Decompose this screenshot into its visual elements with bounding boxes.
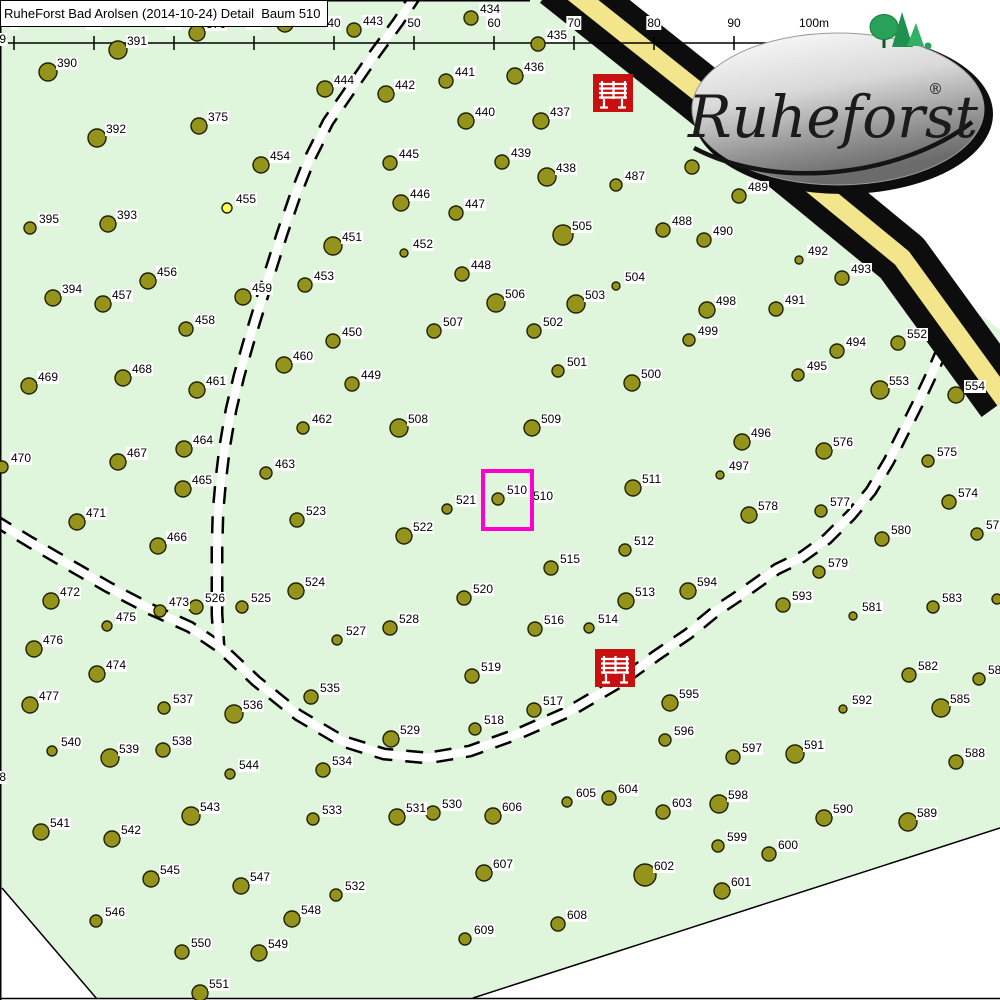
- tree-dot[interactable]: [948, 387, 964, 403]
- tree-dot[interactable]: [507, 68, 523, 84]
- tree-dot[interactable]: [179, 322, 193, 336]
- tree-dot[interactable]: [251, 945, 267, 961]
- tree-dot[interactable]: [839, 705, 847, 713]
- tree-dot[interactable]: [871, 381, 889, 399]
- tree-dot[interactable]: [567, 295, 585, 313]
- tree-dot[interactable]: [685, 160, 699, 174]
- tree-dot[interactable]: [297, 422, 309, 434]
- logo-registered-mark: ®: [928, 80, 943, 98]
- tree-dot[interactable]: [396, 528, 412, 544]
- tree-dot[interactable]: [712, 840, 724, 852]
- tree-dot[interactable]: [899, 813, 917, 831]
- tree-dot[interactable]: [683, 334, 695, 346]
- tree-dot[interactable]: [659, 734, 671, 746]
- tree-dot[interactable]: [383, 156, 397, 170]
- tree-dot[interactable]: [400, 249, 408, 257]
- tree-dot[interactable]: [69, 514, 85, 530]
- tree-dot[interactable]: [260, 467, 272, 479]
- tree-dot[interactable]: [551, 917, 565, 931]
- tree-dot[interactable]: [21, 378, 37, 394]
- tree-dot[interactable]: [714, 883, 730, 899]
- tree-dot[interactable]: [469, 723, 481, 735]
- tree-dot[interactable]: [276, 357, 292, 373]
- tree-dot-highlighted[interactable]: [222, 203, 232, 213]
- tree-dot[interactable]: [769, 302, 783, 316]
- tree-dot[interactable]: [383, 731, 399, 747]
- tree-dot[interactable]: [100, 216, 116, 232]
- bench-icon: [595, 649, 635, 687]
- tree-dot[interactable]: [330, 889, 342, 901]
- tree-dot[interactable]: [102, 621, 112, 631]
- tree-dot[interactable]: [326, 334, 340, 348]
- tree-dot[interactable]: [610, 179, 622, 191]
- tree-dot[interactable]: [33, 824, 49, 840]
- tree-dot[interactable]: [762, 847, 776, 861]
- tree-dot[interactable]: [476, 865, 492, 881]
- tree-dot[interactable]: [973, 673, 985, 685]
- tree-dot[interactable]: [307, 813, 319, 825]
- tree-dot[interactable]: [383, 621, 397, 635]
- tree-dot[interactable]: [115, 370, 131, 386]
- tree-dot[interactable]: [90, 915, 102, 927]
- selection-box: [481, 469, 534, 531]
- tree-dot[interactable]: [816, 810, 832, 826]
- tree-dot[interactable]: [225, 769, 235, 779]
- tree-dot[interactable]: [104, 831, 120, 847]
- tree-dot[interactable]: [710, 795, 728, 813]
- tree-dot[interactable]: [457, 591, 471, 605]
- tree-dot[interactable]: [734, 434, 750, 450]
- forest-detail-map: Ruheforst ® 3893903913763744434344354444…: [0, 0, 1000, 1000]
- tree-dot[interactable]: [176, 441, 192, 457]
- tree-dot[interactable]: [662, 695, 678, 711]
- tree-dot[interactable]: [26, 641, 42, 657]
- tree-dot[interactable]: [43, 593, 59, 609]
- tree-dot[interactable]: [527, 703, 541, 717]
- tree-dot[interactable]: [792, 369, 804, 381]
- tree-dot[interactable]: [971, 528, 983, 540]
- tree-dot[interactable]: [849, 612, 857, 620]
- tree-dot[interactable]: [140, 273, 156, 289]
- tree-dot[interactable]: [88, 129, 106, 147]
- tree-dot[interactable]: [553, 225, 573, 245]
- tree-dot[interactable]: [459, 933, 471, 945]
- tree-dot[interactable]: [390, 419, 408, 437]
- tree-dot[interactable]: [815, 505, 827, 517]
- tree-dot[interactable]: [533, 113, 549, 129]
- tree-dot[interactable]: [528, 622, 542, 636]
- tree-dot[interactable]: [741, 507, 757, 523]
- tree-dot[interactable]: [891, 336, 905, 350]
- tree-dot[interactable]: [618, 593, 634, 609]
- tree-dot[interactable]: [89, 666, 105, 682]
- tree-dot[interactable]: [619, 544, 631, 556]
- tree-dot[interactable]: [612, 282, 620, 290]
- tree-dot[interactable]: [427, 324, 441, 338]
- tree-dot[interactable]: [298, 278, 312, 292]
- tree-dot[interactable]: [191, 118, 207, 134]
- tree-dot[interactable]: [189, 382, 205, 398]
- tree-dot[interactable]: [110, 454, 126, 470]
- tree-dot[interactable]: [795, 256, 803, 264]
- tree-dot[interactable]: [455, 267, 469, 281]
- tree-dot[interactable]: [95, 296, 111, 312]
- tree-dot[interactable]: [253, 157, 269, 173]
- tree-dot[interactable]: [316, 763, 330, 777]
- tree-dot[interactable]: [458, 113, 474, 129]
- tree-dot[interactable]: [634, 864, 656, 886]
- tree-dot[interactable]: [101, 749, 119, 767]
- tree-dot[interactable]: [992, 594, 1000, 604]
- tree-dot[interactable]: [485, 808, 501, 824]
- tree-dot[interactable]: [527, 324, 541, 338]
- tree-dot[interactable]: [716, 471, 724, 479]
- tree-dot[interactable]: [233, 878, 249, 894]
- tree-dot[interactable]: [656, 805, 670, 819]
- tree-dot[interactable]: [902, 668, 916, 682]
- tree-dot[interactable]: [175, 945, 189, 959]
- tree-dot[interactable]: [830, 344, 844, 358]
- tree-dot[interactable]: [465, 669, 479, 683]
- tree-dot[interactable]: [47, 746, 57, 756]
- tree-dot[interactable]: [786, 745, 804, 763]
- tree-dot[interactable]: [524, 420, 540, 436]
- tree-dot[interactable]: [347, 23, 361, 37]
- tree-dot[interactable]: [732, 189, 746, 203]
- tree-dot[interactable]: [288, 583, 304, 599]
- tree-dot[interactable]: [189, 600, 203, 614]
- tree-dot[interactable]: [816, 443, 832, 459]
- tree-dot[interactable]: [324, 237, 342, 255]
- tree-dot[interactable]: [656, 223, 670, 237]
- tree-dot[interactable]: [602, 791, 616, 805]
- tree-dot[interactable]: [154, 605, 166, 617]
- tree-dot[interactable]: [189, 25, 205, 41]
- tree-dot[interactable]: [225, 705, 243, 723]
- tree-dot[interactable]: [235, 289, 251, 305]
- tree-dot[interactable]: [487, 294, 505, 312]
- tree-dot[interactable]: [192, 985, 208, 1000]
- tree-dot[interactable]: [304, 690, 318, 704]
- tree-dot[interactable]: [927, 601, 939, 613]
- tree-dot[interactable]: [835, 271, 849, 285]
- tree-dot[interactable]: [158, 702, 170, 714]
- tree-dot[interactable]: [699, 302, 715, 318]
- bench-icon: [593, 74, 633, 112]
- tree-dot[interactable]: [236, 601, 248, 613]
- tree-dot[interactable]: [175, 481, 191, 497]
- tree-dot[interactable]: [439, 74, 453, 88]
- tree-dot[interactable]: [464, 11, 478, 25]
- tree-dot[interactable]: [45, 290, 61, 306]
- tree-dot[interactable]: [625, 480, 641, 496]
- tree-dot[interactable]: [109, 41, 127, 59]
- tree-dot[interactable]: [949, 755, 963, 769]
- tree-dot[interactable]: [389, 809, 405, 825]
- tree-dot[interactable]: [538, 168, 556, 186]
- tree-dot[interactable]: [942, 495, 956, 509]
- tree-dot[interactable]: [726, 750, 740, 764]
- map-title: RuheForst Bad Arolsen (2014-10-24) Detai…: [0, 0, 328, 27]
- tree-dot[interactable]: [290, 513, 304, 527]
- tree-dot[interactable]: [552, 365, 564, 377]
- tree-dot[interactable]: [150, 538, 166, 554]
- tree-dot[interactable]: [143, 871, 159, 887]
- tree-dot[interactable]: [393, 195, 409, 211]
- tree-dot[interactable]: [284, 911, 300, 927]
- tree-dot[interactable]: [495, 155, 509, 169]
- tree-dot[interactable]: [0, 461, 8, 473]
- tree-dot[interactable]: [584, 623, 594, 633]
- tree-dot[interactable]: [182, 807, 200, 825]
- tree-dot[interactable]: [932, 699, 950, 717]
- tree-dot[interactable]: [317, 81, 333, 97]
- tree-dot[interactable]: [345, 377, 359, 391]
- tree-dot[interactable]: [875, 532, 889, 546]
- tree-dot[interactable]: [697, 233, 711, 247]
- tree-dot[interactable]: [776, 598, 790, 612]
- tree-dot[interactable]: [426, 806, 440, 820]
- tree-dot[interactable]: [442, 504, 452, 514]
- tree-dot[interactable]: [562, 797, 572, 807]
- tree-dot[interactable]: [544, 561, 558, 575]
- tree-dot[interactable]: [39, 63, 57, 81]
- tree-dot[interactable]: [24, 222, 36, 234]
- tree-dot[interactable]: [922, 455, 934, 467]
- ruheforst-logo: Ruheforst ®: [687, 12, 993, 194]
- tree-dot[interactable]: [378, 86, 394, 102]
- tree-dot[interactable]: [22, 697, 38, 713]
- tree-dot[interactable]: [156, 743, 170, 757]
- tree-dot[interactable]: [680, 583, 696, 599]
- tree-dot[interactable]: [624, 375, 640, 391]
- tree-dot[interactable]: [449, 206, 463, 220]
- tree-dot[interactable]: [531, 37, 545, 51]
- tree-dot[interactable]: [332, 635, 342, 645]
- tree-dot[interactable]: [813, 566, 825, 578]
